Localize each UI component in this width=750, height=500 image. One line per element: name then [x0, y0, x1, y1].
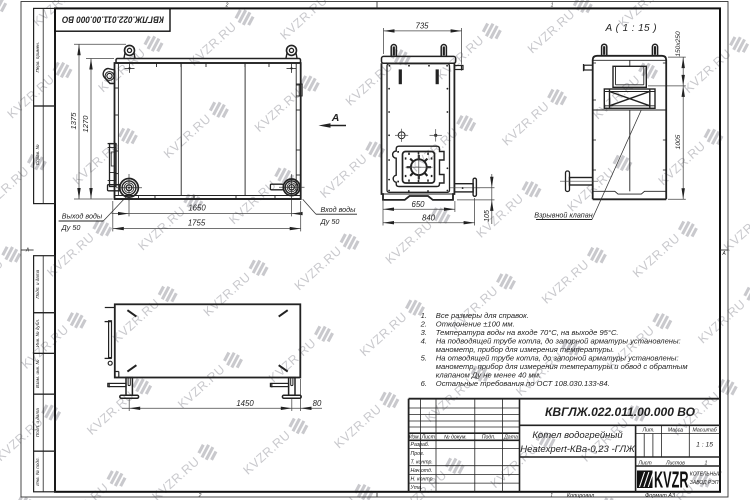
svg-text:735: 735	[415, 22, 429, 31]
svg-text:Выход воды: Выход воды	[62, 212, 103, 221]
svg-text:№ докум.: № докум.	[444, 435, 467, 441]
svg-text:КВГЛЖ.022.011.00.000 ВО: КВГЛЖ.022.011.00.000 ВО	[62, 14, 164, 24]
svg-text:ЗАВОД РЭП: ЗАВОД РЭП	[690, 480, 719, 486]
svg-text:650: 650	[411, 200, 425, 209]
svg-text:1270: 1270	[81, 115, 90, 133]
svg-text:А ( 1 : 15 ): А ( 1 : 15 )	[604, 23, 657, 34]
svg-text:Ду 50: Ду 50	[61, 223, 81, 232]
svg-text:Н. контр.: Н. контр.	[411, 477, 434, 483]
svg-text:80: 80	[313, 399, 322, 408]
svg-text:1 : 15: 1 : 15	[696, 442, 713, 449]
svg-text:КВГЛЖ.022.011.00.000 ВО: КВГЛЖ.022.011.00.000 ВО	[545, 407, 695, 419]
svg-text:1: 1	[705, 460, 708, 466]
svg-text:А: А	[331, 112, 340, 124]
svg-text:Нач.отд.: Нач.отд.	[411, 468, 433, 474]
svg-text:Лит.: Лит.	[642, 428, 655, 434]
svg-text:Формат А3: Формат А3	[645, 493, 676, 499]
svg-text:5.: 5.	[421, 354, 427, 363]
svg-text:Heatexpert-КВа-0,23 -ГЛЖ: Heatexpert-КВа-0,23 -ГЛЖ	[520, 444, 636, 455]
svg-text:Подп. и дата: Подп. и дата	[35, 408, 40, 437]
svg-text:Перв. примен.: Перв. примен.	[35, 42, 40, 73]
svg-text:1450: 1450	[236, 399, 254, 408]
svg-text:2: 2	[225, 3, 229, 9]
svg-text:Масса: Масса	[668, 428, 683, 434]
svg-text:Котел водогрейный: Котел водогрейный	[532, 430, 623, 441]
svg-text:Подп. и дата: Подп. и дата	[35, 269, 40, 298]
svg-text:Лист: Лист	[421, 435, 436, 441]
svg-text:А: А	[721, 251, 726, 257]
svg-text:105: 105	[484, 210, 491, 222]
svg-text:Взрывной клапан: Взрывной клапан	[534, 211, 592, 220]
svg-text:150x250: 150x250	[675, 31, 682, 57]
svg-text:Разраб.: Разраб.	[411, 442, 430, 448]
svg-text:1005: 1005	[675, 134, 682, 149]
svg-text:КОТЕЛЬНЫЙ: КОТЕЛЬНЫЙ	[690, 469, 722, 477]
svg-text:1: 1	[551, 3, 554, 9]
svg-text:Инв. № дубл.: Инв. № дубл.	[35, 319, 40, 347]
svg-text:А: А	[25, 248, 30, 254]
svg-text:Пров.: Пров.	[411, 451, 425, 457]
svg-text:Лист: Лист	[637, 460, 652, 466]
svg-text:Изм.: Изм.	[409, 435, 420, 441]
svg-text:1375: 1375	[69, 112, 78, 130]
svg-text:Остальные требования по ОСТ 10: Остальные требования по ОСТ 108.030.133-…	[436, 379, 610, 388]
svg-text:Копировал: Копировал	[567, 493, 594, 499]
svg-text:1650: 1650	[188, 204, 206, 213]
svg-text:Утв.: Утв.	[411, 485, 423, 491]
svg-text:6.: 6.	[421, 379, 427, 388]
svg-text:840: 840	[422, 213, 436, 222]
svg-text:1755: 1755	[188, 219, 206, 228]
svg-text:Инв. № подл.: Инв. № подл.	[35, 457, 40, 486]
svg-text:Вход воды: Вход воды	[321, 205, 357, 214]
svg-text:Масштаб: Масштаб	[692, 428, 717, 434]
svg-text:2: 2	[198, 493, 202, 499]
svg-text:1: 1	[550, 493, 553, 499]
svg-text:Листов: Листов	[665, 460, 685, 466]
svg-text:Ду 50: Ду 50	[320, 217, 340, 226]
svg-text:KVZR: KVZR	[654, 467, 689, 493]
svg-text:Т. контр.: Т. контр.	[411, 459, 433, 465]
svg-text:4.: 4.	[421, 337, 427, 346]
svg-text:Подп.: Подп.	[482, 435, 496, 441]
svg-text:Дата: Дата	[503, 435, 518, 441]
svg-text:Справ. №: Справ. №	[35, 144, 40, 165]
svg-text:Взам. инв. №: Взам. инв. №	[35, 360, 40, 388]
